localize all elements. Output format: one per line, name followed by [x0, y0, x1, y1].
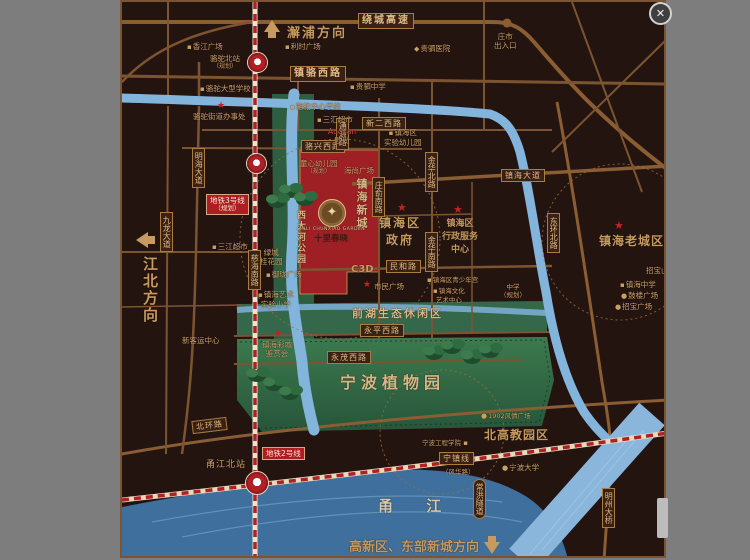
poi-luotuo-beizhan: 骆驼北站（规划） [210, 54, 240, 71]
poi-xingzheng-center: 镇海区行政服务中心 [432, 216, 488, 255]
road-ningzhen-sub: （风华路） [442, 468, 475, 476]
poi-gulou-plaza: ●鼓楼广场 [621, 291, 658, 301]
building-icon: ▪ [285, 43, 290, 51]
poi-zhaobaoshan-bridge: 招宝山大桥 [646, 266, 666, 275]
hospital-icon: ◆ [414, 45, 419, 53]
poi-luotuo-school: ▪骆驼大型学校 [200, 84, 251, 94]
star-icon: ★ [397, 202, 407, 213]
school-icon: ▪ [200, 85, 205, 93]
school-icon: ▪ [389, 129, 394, 137]
poi-zhaobao-plaza: ●招宝广场 [615, 302, 652, 312]
star-icon: ★ [363, 281, 371, 290]
poi-tongxin-kindergarten: 童心幼儿园（规划） [300, 159, 338, 176]
poi-ningbo-university: ●宁波大学 [502, 463, 539, 473]
metro-line2-label: 地铁2号线 [262, 447, 305, 460]
poi-caicheng-event: 镇海彩城鉴赏会 [262, 340, 292, 359]
direction-west: 江北方向 [140, 256, 161, 324]
star-icon: ★ [453, 204, 463, 215]
area-c3d-code: C3D [351, 264, 374, 275]
poi-luotuo-office: 骆驼街道办事处 [193, 112, 246, 121]
road-zhenluo-xilu: 镇骆西路 [290, 66, 346, 82]
road-minhe-lu: 民和路 [386, 260, 421, 273]
area-botanical-garden: 宁波植物园 [340, 369, 445, 393]
poi-expressway-exit: 庄市出入口 [494, 32, 517, 51]
poi-sanjiang-market: ▪三江超市 [212, 242, 248, 252]
dot-icon: ● [502, 464, 508, 472]
poi-guisi-middle-school: ▪贵驷中学 [350, 82, 386, 92]
road-raocheng-gaosu: 绕城高速 [358, 13, 414, 29]
school-icon: ▪ [461, 439, 468, 447]
poi-auchan: Auchan欧尚 [328, 127, 356, 146]
poi-zhenhai-zhongxue: ▪镇海中学 [620, 280, 656, 290]
metro-line3-label: 地铁3号线（规划） [206, 194, 249, 215]
road-mingzhou-daqiao: 明州大桥 [602, 488, 615, 528]
direction-south: 高新区、东部新城方向 [349, 536, 479, 555]
poi-art-primary-school: ▪镇海艺术实验小学 [258, 290, 294, 309]
star-icon: ★ [614, 220, 624, 231]
poi-sanhui-market: ▪三汇超市 [317, 115, 353, 125]
poi-wenhua-center: ▪镇海文化艺术中心 [433, 287, 465, 304]
area-beigaojiao: 北高教园区 [484, 426, 549, 443]
school-icon: ▪ [350, 83, 355, 91]
metro-badge-icon [248, 53, 267, 72]
road-changhong-suidao: 常洪隧道 [473, 479, 486, 519]
road-yongmao-xilu: 永茂西路 [327, 351, 371, 364]
area-c3d-name: 镇海新城 [353, 178, 369, 230]
poi-guisi-hospital: ◆贵驷医院 [414, 44, 450, 54]
poi-xinkeyun-center: 新客运中心 [182, 336, 220, 345]
poi-ningbo-eng-college: 宁波工程学院 ▪ [422, 439, 469, 448]
store-icon: ▪ [212, 243, 217, 251]
project-name-cn: 十里春晓 [294, 234, 368, 245]
road-jinhua-beilu: 金华北路 [425, 152, 438, 192]
poi-shiyan-kindergarten: ▪镇海区实验幼儿园 [384, 128, 422, 147]
school-icon: ▪ [290, 103, 295, 111]
scrollbar-thumb[interactable] [657, 498, 668, 538]
road-minghai-dadao: 明海大道 [192, 148, 205, 188]
poi-luotuo-central-school: ▪骆驼中心学校 [290, 102, 341, 112]
dot-icon: ● [615, 303, 621, 311]
building-icon: ▪ [187, 43, 192, 51]
project-name-en: SHILI CHUNXIAO GARDEN [294, 227, 368, 233]
dot-icon: ● [481, 412, 487, 420]
poi-qingshaonian-palace: ▪镇海区青少年宫 [427, 276, 478, 285]
school-icon: ▪ [258, 291, 263, 299]
road-zhuangyu-nanlu: 庄俞南路 [372, 177, 385, 217]
road-zhenhai-dadao: 镇海大道 [501, 169, 545, 182]
dot-icon: ● [621, 292, 627, 300]
school-icon: ▪ [620, 281, 625, 289]
poi-xiangjiang-plaza: ▪香江广场 [187, 42, 223, 52]
area-laochengqu: 镇海老城区 [599, 232, 664, 249]
poi-yulong-plaza: ▪御珑广场 [266, 270, 302, 280]
poi-lvcheng-guihuayuan: 绿城桂花园 [260, 248, 283, 267]
building-icon: ▪ [433, 287, 438, 295]
direction-north: 澥浦方向 [287, 22, 347, 41]
poi-yongjiang-beizhan: 甬江北站 [206, 460, 246, 471]
west-direction-arrow-icon [136, 232, 148, 248]
north-direction-arrow-icon [264, 20, 280, 32]
star-icon: ★ [274, 330, 282, 339]
road-ningzhen-xian: 宁镇线 [439, 452, 474, 465]
close-button[interactable]: ✕ [649, 2, 672, 25]
area-yongjiang-name: 甬 江 [378, 495, 455, 516]
poi-school-planned: 中学（规划） [500, 283, 526, 299]
road-jiulong-dadao: 九龙大道 [160, 212, 173, 252]
poi-shimin-plaza: 市民广场 [374, 282, 404, 291]
poi-lishi-plaza: ▪利时广场 [285, 42, 321, 52]
poi-zhenhai-government: 镇海区政府 [376, 214, 424, 248]
road-donghuan-beilu: 东环北路 [547, 213, 560, 253]
building-icon: ▪ [427, 276, 432, 284]
poi-1902-plaza: ●1902风情广场 [481, 412, 531, 421]
south-direction-arrow-icon [484, 542, 500, 554]
area-qianhu: 前湖生态休闲区 [352, 305, 443, 321]
road-yongping-xilu: 永平西路 [360, 324, 404, 337]
store-icon: ▪ [317, 116, 322, 124]
building-icon: ▪ [266, 271, 271, 279]
metro-badge-icon [247, 154, 266, 173]
project-emblem-icon: ✦ [318, 199, 346, 227]
star-icon: ★ [217, 102, 225, 111]
poi-haishang-plaza: 海尚广场 [344, 166, 374, 175]
location-map: 澥浦方向 江北方向 高新区、东部新城方向 绕城高速 庄市出入口 镇骆西路 新二西… [120, 0, 666, 558]
railway-station-badge-icon [246, 472, 268, 494]
